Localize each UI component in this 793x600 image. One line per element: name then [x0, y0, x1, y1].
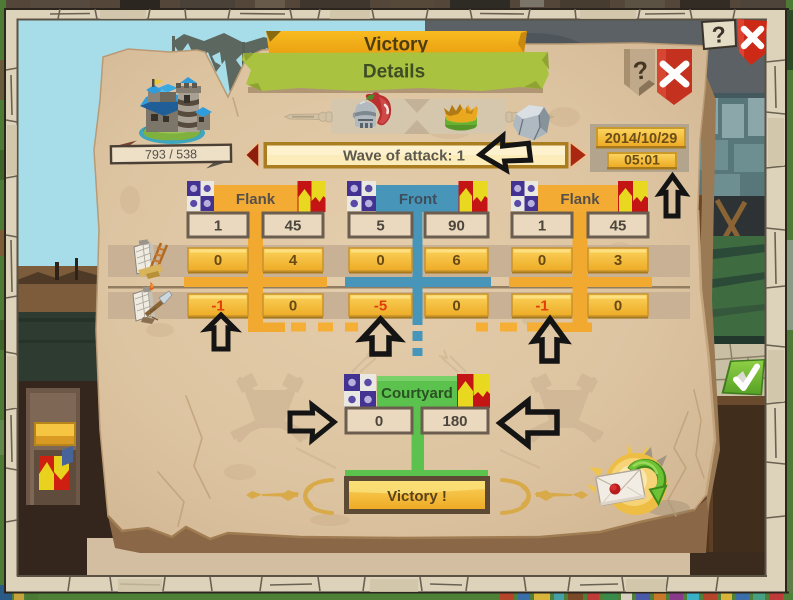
svg-text:0: 0 — [376, 252, 384, 269]
svg-text:-5: -5 — [374, 298, 387, 315]
svg-text:793 / 538: 793 / 538 — [145, 147, 197, 162]
svg-text:Courtyard: Courtyard — [381, 385, 453, 402]
svg-text:?: ? — [711, 21, 727, 48]
svg-text:05:01: 05:01 — [624, 152, 660, 168]
svg-text:0: 0 — [214, 252, 222, 269]
svg-text:180: 180 — [442, 413, 467, 430]
svg-text:Victory: Victory — [364, 35, 429, 56]
svg-text:0: 0 — [614, 298, 622, 315]
svg-text:90: 90 — [448, 218, 465, 235]
svg-text:Flank: Flank — [560, 191, 600, 208]
svg-text:Flank: Flank — [236, 191, 276, 208]
svg-text:Front: Front — [399, 191, 437, 208]
svg-text:2014/10/29: 2014/10/29 — [605, 131, 678, 147]
svg-text:0: 0 — [289, 298, 297, 315]
svg-text:0: 0 — [538, 252, 546, 269]
svg-text:0: 0 — [452, 298, 460, 315]
svg-text:Details: Details — [363, 62, 425, 83]
svg-text:45: 45 — [610, 218, 627, 235]
svg-text:Victory !: Victory ! — [387, 488, 447, 505]
svg-text:-1: -1 — [211, 298, 224, 315]
svg-text:3: 3 — [614, 252, 622, 269]
svg-text:6: 6 — [452, 252, 460, 269]
svg-text:Wave of attack: 1: Wave of attack: 1 — [343, 148, 465, 165]
svg-text:1: 1 — [538, 218, 546, 235]
svg-text:1: 1 — [214, 218, 222, 235]
svg-text:5: 5 — [376, 218, 384, 235]
svg-text:0: 0 — [375, 413, 383, 430]
svg-text:4: 4 — [289, 252, 298, 269]
svg-text:45: 45 — [285, 218, 302, 235]
svg-text:-1: -1 — [535, 298, 548, 315]
